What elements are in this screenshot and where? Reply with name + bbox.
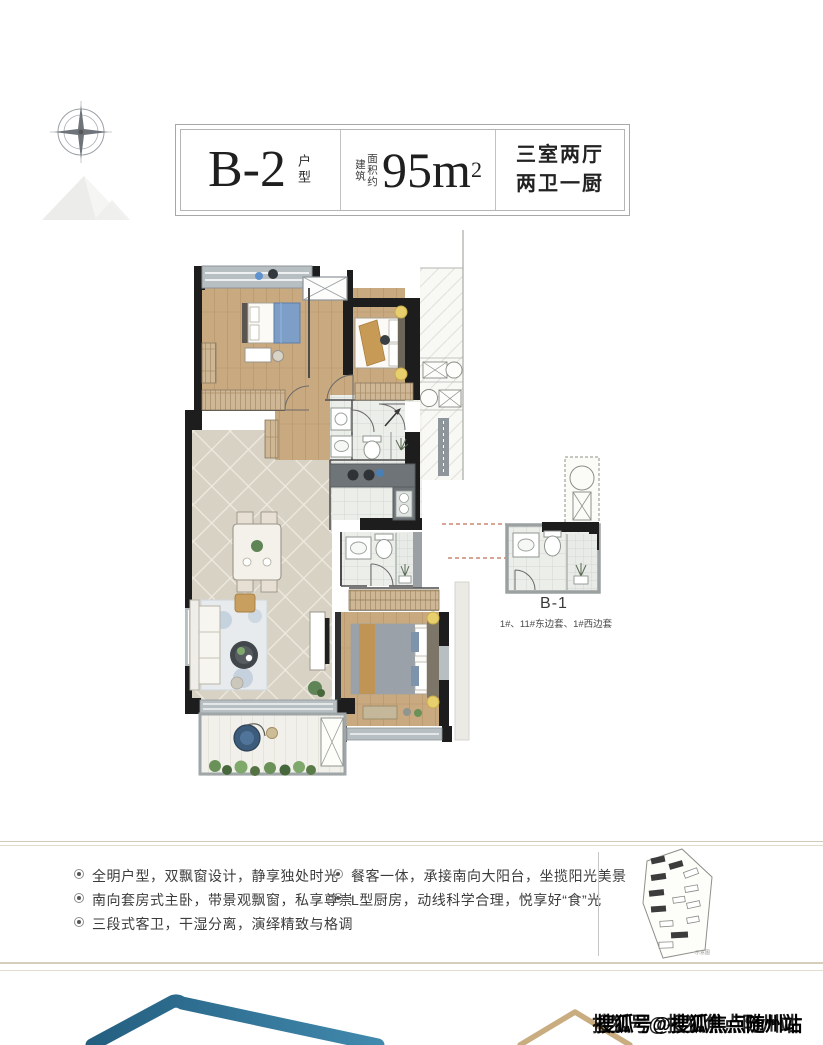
vertical-divider (598, 852, 599, 956)
chair-icon (380, 335, 390, 345)
feature-item: 南向套房式主卧，带景观飘窗，私享尊崇 (74, 890, 353, 908)
floor-plan: B-1 1#、11#东边套、1#西边套 (175, 228, 625, 788)
blue-mountain-logo (70, 990, 390, 1045)
inset-caption: 1#、11#东边套、1#西边套 (500, 618, 613, 630)
area-value: 95m (382, 145, 471, 195)
feature-item: 餐客一体，承接南向大阳台，坐揽阳光美景 (333, 866, 627, 884)
site-map: 示意图 (640, 846, 716, 964)
nightstand-icon (427, 696, 439, 708)
area-prefix: 建筑 面积约 (354, 153, 378, 188)
nightstand-icon (395, 306, 407, 318)
unit-code-cell: B-2 户型 (181, 130, 341, 210)
layout-line2: 两卫一厨 (516, 170, 604, 199)
compass-icon (48, 99, 114, 165)
lounge-chair (235, 594, 255, 612)
area-superscript: 2 (471, 157, 482, 183)
area-prefix-col2: 面积约 (366, 153, 378, 188)
feature-text: 三段式客卫，干湿分离，演绎精致与格调 (92, 914, 353, 934)
side-table (267, 728, 278, 739)
layout-cell: 三室两厅 两卫一厨 (496, 130, 624, 210)
plant-icon (414, 709, 422, 717)
pillow (411, 632, 419, 652)
layout-line1: 三室两厅 (516, 141, 604, 170)
area-prefix-col1: 建筑 (354, 159, 366, 182)
watermark-text: 搜狐号@搜狐焦点随州站 (596, 1008, 809, 1037)
washing-machine-icon (331, 408, 351, 430)
floorplan-poster: B-2 户型 建筑 面积约 95m2 三室两厅 两卫一厨 (0, 0, 823, 1045)
feature-item: 全明户型，双飘窗设计，静享独处时光 (74, 866, 339, 884)
plant-icon (251, 540, 263, 552)
bed-runner (359, 624, 375, 694)
unit-code: B-2 (208, 144, 286, 196)
feature-text: 全明户型，双飘窗设计，静享独处时光 (92, 866, 339, 886)
bay-decor (255, 272, 263, 280)
pouf (231, 677, 243, 689)
mountain-logo-watermark (38, 170, 130, 224)
bullet-icon (74, 869, 84, 879)
bed-icon (274, 303, 300, 343)
stool-icon (273, 351, 284, 362)
nightstand-icon (395, 368, 407, 380)
feature-text: 餐客一体，承接南向大阳台，坐揽阳光美景 (351, 866, 627, 886)
divider-line (0, 970, 823, 971)
divider-line (0, 962, 823, 964)
kettle (376, 469, 384, 477)
feature-item: 三段式客卫，干湿分离，演绎精致与格调 (74, 914, 353, 932)
vanity-desk (245, 348, 271, 362)
feature-text: 南向套房式主卧，带景观飘窗，私享尊崇 (92, 890, 353, 910)
bullet-icon (74, 893, 84, 903)
tv-console (310, 612, 325, 670)
bed-headboard (427, 620, 439, 698)
tv-icon (325, 618, 330, 664)
unit-type-label: 户型 (294, 154, 313, 186)
area-cell: 建筑 面积约 95m2 (341, 130, 496, 210)
bench (363, 706, 397, 719)
bullet-icon (333, 869, 343, 879)
site-map-caption: 示意图 (695, 949, 710, 956)
sofa-icon (190, 600, 199, 690)
plant-icon (237, 647, 245, 655)
feature-item: L型厨房，动线科学合理，悦享好“食”光 (333, 890, 602, 908)
bed-headboard (242, 303, 248, 343)
stove-icon (348, 470, 359, 481)
title-block: B-2 户型 建筑 面积约 95m2 三室两厅 两卫一厨 (175, 124, 630, 216)
bed-headboard (398, 314, 405, 372)
inset-label: B-1 (540, 595, 568, 612)
dining-set (233, 512, 281, 592)
feature-text: L型厨房，动线科学合理，悦享好“食”光 (351, 890, 602, 910)
inset-connector-lines (442, 524, 507, 558)
bullet-icon (74, 917, 84, 927)
nightstand-icon (427, 612, 439, 624)
b1-inset: B-1 1#、11#东边套、1#西边套 (500, 457, 613, 630)
bullet-icon (333, 893, 343, 903)
